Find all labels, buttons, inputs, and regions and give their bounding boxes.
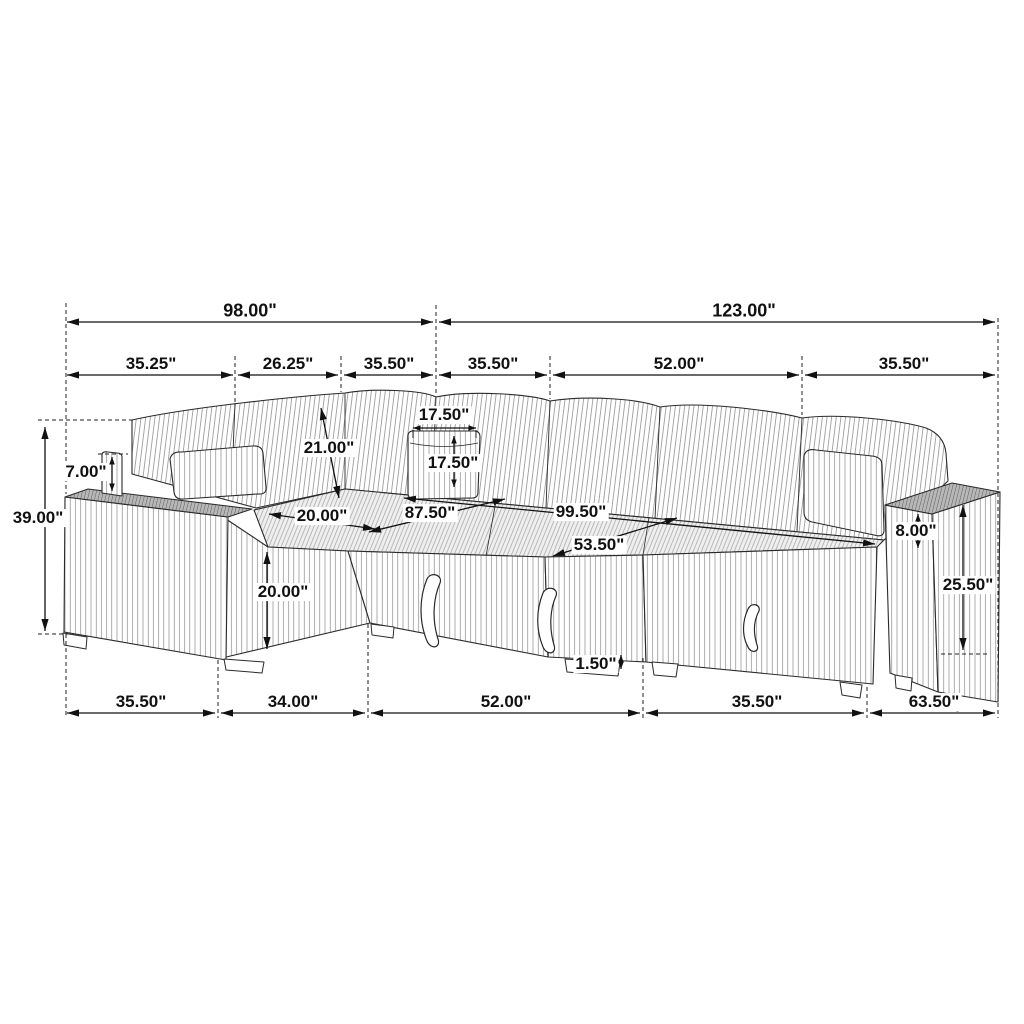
right-arm-side	[932, 492, 1000, 702]
dim-label-overall-right-123: 123.00"	[710, 302, 778, 321]
left-lumbar-pillow	[170, 446, 266, 499]
sofa-dimension-diagram: 98.00" 123.00" 35.25" 26.25" 35.50" 35.5…	[0, 0, 1024, 1024]
dim-label-storage-20: 20.00"	[256, 583, 311, 601]
dim-label-armpad-7: 7.00"	[63, 463, 108, 481]
sofa-drawing	[63, 390, 1000, 711]
dim-label-height-39: 39.00"	[11, 509, 66, 527]
bed-box-front-2	[545, 555, 646, 662]
figure-canvas	[0, 0, 1024, 1024]
dim-label-seat-2625: 26.25"	[261, 355, 316, 373]
dim-label-seat-52: 52.00"	[652, 355, 707, 373]
dim-label-armheight-255: 25.50"	[941, 576, 996, 594]
right-lumbar-pillow	[804, 450, 884, 536]
dim-label-backrest-21: 21.00"	[302, 439, 357, 457]
dim-label-arm-3525: 35.25"	[124, 355, 179, 373]
left-arm-front	[64, 497, 228, 660]
dim-label-overall-left-98: 98.00"	[221, 302, 279, 321]
dim-label-seat-355c: 35.50"	[877, 355, 932, 373]
dim-label-seat-355a: 35.50"	[362, 355, 417, 373]
dim-label-bottom-355a: 35.50"	[114, 693, 169, 711]
dim-label-bed-875: 87.50"	[403, 504, 458, 522]
dim-label-bed-535: 53.50"	[572, 536, 627, 554]
dim-label-seat-355b: 35.50"	[466, 355, 521, 373]
dim-label-armrise-8: 8.00"	[893, 522, 938, 540]
dim-label-pillow-h-175: 17.50"	[426, 454, 481, 472]
dim-label-bed-995: 99.50"	[554, 503, 609, 521]
dim-label-bottom-635: 63.50"	[907, 693, 962, 711]
dim-label-bottom-34: 34.00"	[266, 693, 321, 711]
bed-box-front-3	[643, 547, 877, 684]
bed-box-front-1	[348, 551, 548, 657]
dim-label-pillow-w-175: 17.50"	[417, 406, 472, 424]
dim-label-bottom-52: 52.00"	[479, 693, 534, 711]
dim-label-deck-20: 20.00"	[295, 507, 350, 525]
dim-label-leg-15: 1.50"	[573, 655, 618, 673]
dim-label-bottom-355b: 35.50"	[730, 693, 785, 711]
